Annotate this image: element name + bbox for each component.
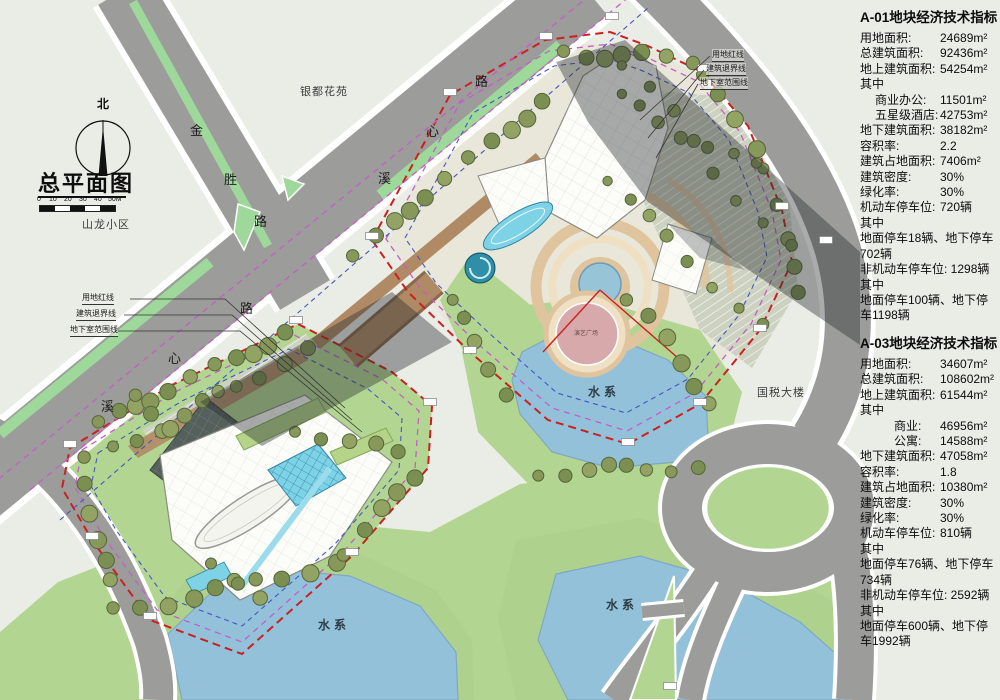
panel-a03-title: A-03地块经济技术指标	[860, 332, 1000, 352]
indicator-row: 地面停车100辆、地下停车1198辆	[860, 293, 1000, 324]
indicator-row: 地下建筑面积:47058m²	[860, 449, 1000, 464]
indicator-row: 其中	[860, 403, 1000, 418]
road-name-xixin: 溪	[101, 396, 114, 415]
scale-tick: 20	[64, 196, 72, 203]
indicator-row: 非机动车停车位: 1298辆	[860, 262, 1000, 277]
scale-tick: 0	[37, 196, 41, 203]
indicator-row: 商业办公:11501m²	[860, 93, 1000, 108]
indicator-row: 机动车停车位:810辆	[860, 526, 1000, 541]
road-name-jinsheng: 胜	[224, 169, 237, 188]
scale-tick: 30	[79, 196, 87, 203]
site-plan-screenshot: 北 总平面图 0 10 20 30 40 50M 用地红线 建筑退界线 地下室范…	[0, 0, 1000, 700]
indicator-row: 建筑占地面积:10380m²	[860, 480, 1000, 495]
road-name-xixin: 溪	[378, 168, 391, 187]
label-water-system: 水系	[606, 596, 638, 613]
indicator-row: 地下建筑面积:38182m²	[860, 123, 1000, 138]
panel-a01-title: A-01地块经济技术指标	[860, 6, 1000, 26]
indicator-row: 地上建筑面积:54254m²	[860, 62, 1000, 77]
indicator-row: 绿化率:30%	[860, 185, 1000, 200]
legend-land-red-line: 用地红线	[712, 49, 744, 62]
panel-a03-indicators: A-03地块经济技术指标 用地面积:34607m² 总建筑面积:108602m²…	[860, 332, 1000, 650]
north-label: 北	[97, 95, 109, 112]
indicator-row: 容积率:1.8	[860, 465, 1000, 480]
legend-setback-line: 建筑退界线	[76, 308, 116, 321]
indicator-row: 总建筑面积:108602m²	[860, 372, 1000, 387]
indicator-row: 非机动车停车位: 2592辆	[860, 588, 1000, 603]
label-water-system: 水系	[588, 383, 620, 400]
road-name-jinsheng: 金	[190, 120, 203, 139]
indicator-row: 其中	[860, 77, 1000, 92]
scale-tick: 40	[94, 196, 102, 203]
road-name-xixin: 心	[426, 121, 439, 140]
road-name-xixin: 路	[475, 71, 488, 90]
indicator-row: 其中	[860, 604, 1000, 619]
indicator-row: 建筑密度:30%	[860, 170, 1000, 185]
page-title: 总平面图	[38, 166, 134, 198]
indicator-row: 总建筑面积:92436m²	[860, 46, 1000, 61]
scale-bar	[39, 205, 116, 212]
road-name-xixin: 路	[240, 298, 253, 317]
legend-basement-line: 地下室范围线	[70, 324, 118, 337]
legend-basement-line: 地下室范围线	[700, 77, 748, 90]
label-performance-plaza: 演艺广场	[574, 328, 598, 337]
panel-a01-indicators: A-01地块经济技术指标 用地面积:24689m² 总建筑面积:92436m² …	[860, 6, 1000, 324]
site-plan-canvas	[0, 0, 1000, 700]
indicator-row: 其中	[860, 542, 1000, 557]
scale-tick: 50M	[108, 196, 122, 203]
indicator-row: 地上建筑面积:61544m²	[860, 388, 1000, 403]
indicator-row: 用地面积:34607m²	[860, 357, 1000, 372]
indicator-row: 公寓:14588m²	[860, 434, 1000, 449]
label-guoshui-building: 国税大楼	[757, 384, 805, 400]
road-name-jinsheng: 路	[254, 211, 267, 230]
road-name-xixin: 心	[168, 348, 181, 367]
label-water-system: 水系	[318, 616, 350, 633]
scale-tick: 10	[49, 196, 57, 203]
indicator-row: 地面停车18辆、地下停车702辆	[860, 231, 1000, 262]
legend-land-red-line: 用地红线	[82, 292, 114, 305]
label-yindu-estate: 银都花苑	[300, 83, 348, 99]
label-shanlong-estate: 山龙小区	[82, 216, 130, 232]
legend-setback-line: 建筑退界线	[706, 63, 746, 76]
indicator-row: 机动车停车位:720辆	[860, 200, 1000, 215]
indicator-row: 绿化率:30%	[860, 511, 1000, 526]
indicator-row: 地面停车76辆、地下停车734辆	[860, 557, 1000, 588]
indicator-row: 商业:46956m²	[860, 419, 1000, 434]
indicator-row: 用地面积:24689m²	[860, 31, 1000, 46]
indicator-row: 五星级酒店:42753m²	[860, 108, 1000, 123]
indicator-row: 建筑密度:30%	[860, 496, 1000, 511]
indicator-row: 地面停车600辆、地下停车1992辆	[860, 619, 1000, 650]
indicator-row: 其中	[860, 216, 1000, 231]
indicator-row: 其中	[860, 278, 1000, 293]
indicator-row: 容积率:2.2	[860, 139, 1000, 154]
indicator-row: 建筑占地面积:7406m²	[860, 154, 1000, 169]
